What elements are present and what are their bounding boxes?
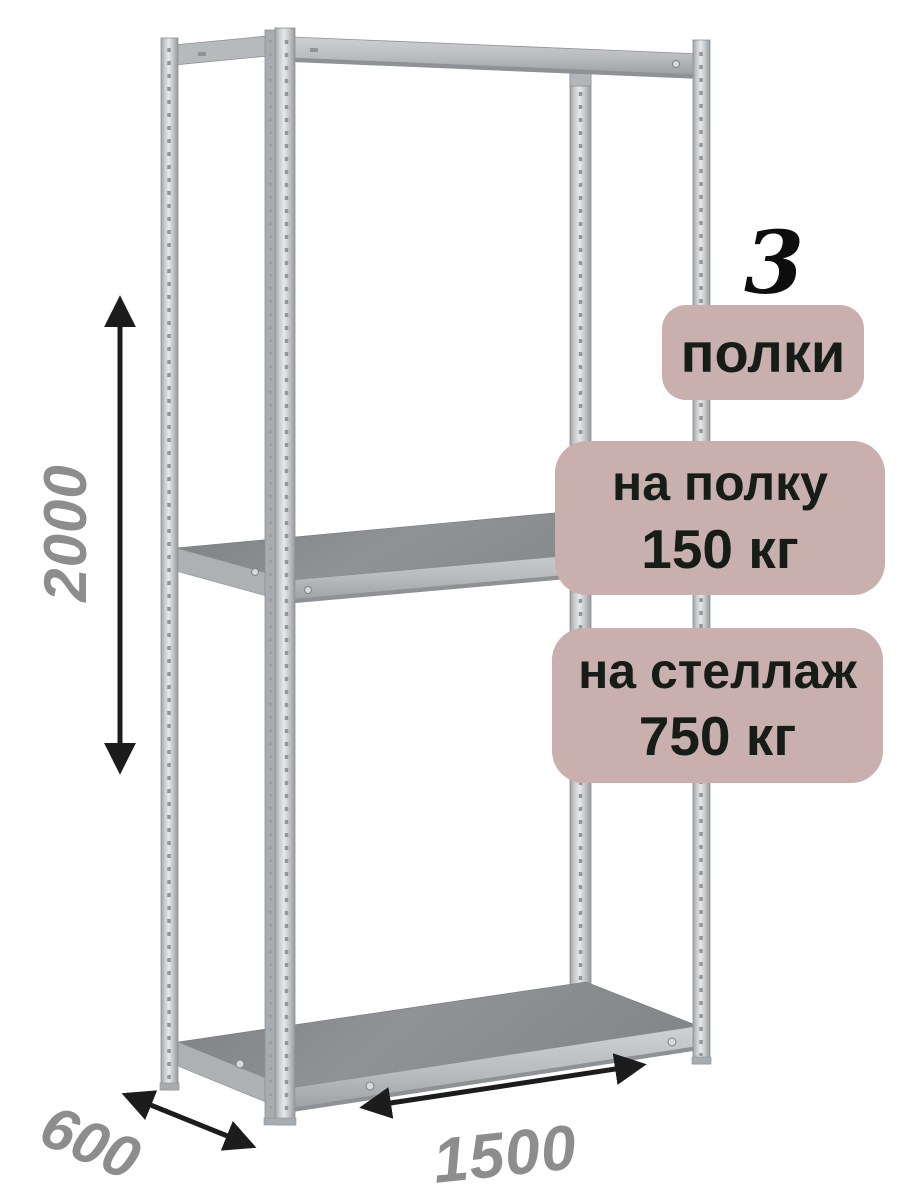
top-shelf-frame xyxy=(163,36,702,79)
product-dimension-diagram: 2000 600 1500 3 полки на полку 150 кг на… xyxy=(0,0,900,1200)
height-dimension-label: 2000 xyxy=(36,464,96,601)
width-dimension-label: 1500 xyxy=(430,1116,580,1194)
shelving-rack-illustration xyxy=(0,0,900,1200)
shelf-count-number: 3 xyxy=(744,221,804,307)
post-back-left xyxy=(160,38,179,1090)
post-front-left xyxy=(264,28,296,1125)
per-rack-load-caption: на стеллаж xyxy=(578,640,857,703)
shelf-count-badge: полки xyxy=(662,305,864,400)
bottom-shelf xyxy=(178,982,698,1112)
per-rack-load-value: 750 кг xyxy=(639,702,796,771)
per-shelf-load-value: 150 кг xyxy=(641,515,798,584)
shelf-count-badge-label: полки xyxy=(681,318,846,388)
per-rack-load-badge: на стеллаж 750 кг xyxy=(552,628,883,783)
per-shelf-load-badge: на полку 150 кг xyxy=(555,441,885,595)
per-shelf-load-caption: на полку xyxy=(612,452,828,515)
